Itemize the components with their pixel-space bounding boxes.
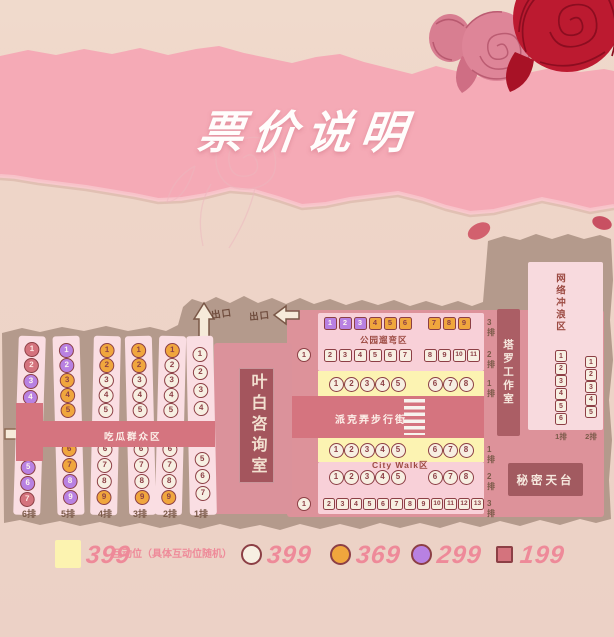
seat-citywalk-3排-8: 8 (404, 498, 417, 511)
seat-left-6排-6: 6 (19, 475, 34, 490)
seat-left-5排-5: 5 (60, 402, 75, 417)
row-label: 1排 (487, 445, 495, 465)
seat-left-2排-7: 7 (161, 457, 176, 472)
seat-left-3排-7: 7 (133, 457, 148, 472)
seat-citywalk-2排-6: 6 (428, 470, 443, 485)
seat-citywalk-1排-4: 4 (375, 443, 390, 458)
legend-price-299: 299 (436, 543, 483, 568)
seat-park-1排-4: 4 (375, 377, 390, 392)
seat-park-3排-6: 6 (399, 317, 412, 330)
seat-park-2排-6: 6 (384, 349, 397, 362)
seat-park-1排-8: 8 (459, 377, 474, 392)
seat-citywalk-3排-2: 2 (323, 498, 336, 511)
seat-citywalk-1排-7: 7 (443, 443, 458, 458)
seat-internet-1排-1: 1 (555, 350, 567, 362)
legend-price-199: 199 (519, 543, 566, 568)
row-label: 5排 (53, 507, 83, 520)
exit-label-side: 出口 (248, 307, 270, 323)
row-label: 2排 (487, 472, 495, 492)
seat-citywalk-2排-8: 8 (459, 470, 474, 485)
seat-park-3排-1: 1 (324, 317, 337, 330)
legend-note-interactive: 互动位（具体互动位随机） (112, 549, 237, 560)
seat-left-2排-8: 8 (161, 473, 176, 488)
seat-park-3排-4: 4 (369, 317, 382, 330)
seat-citywalk-3排-9: 9 (417, 498, 430, 511)
seat-citywalk-3排-12: 12 (458, 498, 471, 511)
seat-internet-2排-2: 2 (585, 369, 597, 381)
seat-left-6排-7: 7 (19, 491, 34, 506)
seat-left-1排-7: 7 (195, 485, 210, 500)
seat-citywalk-2排-4: 4 (375, 470, 390, 485)
internet-zone-label: 网络冲浪区 (552, 273, 566, 333)
seat-left-2排-2: 2 (164, 357, 179, 372)
seat-left-3排-3: 3 (131, 372, 146, 387)
seat-park-1排-7: 7 (443, 377, 458, 392)
rooftop-room: 秘密天台 (508, 463, 583, 496)
street-corridor: 派克弄步行街 (287, 396, 484, 438)
ticket-price-poster: 票价说明 派克弄步行街 公园遛弯区 City Walk区 塔罗工作室 网络冲浪区… (0, 0, 614, 637)
seat-internet-1排-3: 3 (555, 375, 567, 387)
seat-left-3排-1: 1 (130, 342, 145, 357)
seat-left-6排-1: 1 (24, 341, 39, 356)
seat-park-2排-5: 5 (369, 349, 382, 362)
seat-left-6排-3: 3 (23, 373, 38, 388)
seat-citywalk-2排-7: 7 (443, 470, 458, 485)
row-label: 1排 (186, 507, 216, 520)
seat-left-1排-4: 4 (193, 400, 208, 415)
legend-swatch-299 (411, 544, 432, 565)
seat-left-4排-3: 3 (98, 372, 113, 387)
seat-park-1排-3: 3 (360, 377, 375, 392)
seat-park-1排-5: 5 (391, 377, 406, 392)
seat-left-3排-2: 2 (131, 357, 146, 372)
seat-park-3排-5: 5 (384, 317, 397, 330)
seat-left-2排-1: 1 (164, 342, 179, 357)
seat-park-1排-2: 2 (344, 377, 359, 392)
row-label: 3排 (125, 507, 155, 520)
consult-room: 叶白咨询室 (239, 368, 274, 483)
seat-left-1排-2: 2 (192, 364, 207, 379)
row-label: 2排 (487, 350, 495, 370)
seat-left-2排-9: 9 (161, 489, 176, 504)
seat-park-2排-8: 8 (424, 349, 437, 362)
seat-left-4排-7: 7 (97, 457, 112, 472)
seat-citywalk-3排-13: 13 (471, 498, 484, 511)
seat-park-1排-1: 1 (329, 377, 344, 392)
seat-left-1排-1: 1 (192, 346, 207, 361)
seat-internet-1排-6: 6 (555, 413, 567, 425)
consult-room-label: 叶白咨询室 (245, 373, 269, 478)
seat-citywalk-1排-3: 3 (360, 443, 375, 458)
seat-citywalk-3排-6: 6 (377, 498, 390, 511)
seat-internet-1排-2: 2 (555, 363, 567, 375)
seat-left-2排-4: 4 (163, 387, 178, 402)
tarot-zone-label: 塔罗工作室 (501, 339, 516, 407)
seat-park-2排-4: 4 (354, 349, 367, 362)
seat-park-2排-11: 11 (467, 349, 480, 362)
seat-left-4排-2: 2 (99, 357, 114, 372)
seat-left-5排-9: 9 (62, 489, 77, 504)
seat-left-5排-4: 4 (59, 387, 74, 402)
seat-left-1排-6: 6 (194, 468, 209, 483)
left-area-zone-label: 吃瓜群众区 (104, 429, 162, 443)
row-label: 6排 (14, 507, 44, 520)
rooftop-zone-label: 秘密天台 (517, 472, 575, 488)
seat-internet-2排-4: 4 (585, 394, 597, 406)
seat-citywalk-1排-1: 1 (329, 443, 344, 458)
seat-citywalk-2排-2: 2 (344, 470, 359, 485)
seat-park-3排-2: 2 (339, 317, 352, 330)
seat-citywalk-3排-10: 10 (431, 498, 444, 511)
seat-internet-1排-4: 4 (555, 388, 567, 400)
seat-citywalk-3排-7: 7 (390, 498, 403, 511)
seat-citywalk-1排-5: 5 (391, 443, 406, 458)
legend-swatch-interactive (55, 540, 81, 568)
left-corridor: 吃瓜群众区 (42, 421, 215, 447)
seat-left-1排-5: 5 (194, 451, 209, 466)
seat-park-2排-1: 1 (297, 348, 311, 362)
row-label: 3排 (487, 318, 495, 338)
seat-park-2排-2: 2 (324, 349, 337, 362)
seat-park-2排-9: 9 (438, 349, 451, 362)
seat-citywalk-1排-6: 6 (428, 443, 443, 458)
seat-park-3排-8: 8 (443, 317, 456, 330)
crosswalk (404, 399, 425, 435)
seat-citywalk-3排-4: 4 (350, 498, 363, 511)
seat-park-1排-6: 6 (428, 377, 443, 392)
seat-citywalk-3排-5: 5 (363, 498, 376, 511)
seat-citywalk-2排-1: 1 (329, 470, 344, 485)
seat-left-5排-3: 3 (59, 372, 74, 387)
seat-citywalk-3排-11: 11 (444, 498, 457, 511)
seat-left-3排-5: 5 (132, 402, 147, 417)
row-label: 1排 (552, 431, 570, 442)
park-zone-label: 公园遛弯区 (360, 334, 408, 346)
seat-internet-2排-1: 1 (585, 356, 597, 368)
seat-citywalk-3排-1: 1 (297, 497, 311, 511)
seat-left-2排-5: 5 (163, 402, 178, 417)
seat-left-4排-8: 8 (96, 473, 111, 488)
seat-left-5排-2: 2 (59, 357, 74, 372)
seat-left-3排-8: 8 (134, 473, 149, 488)
row-label: 4排 (90, 507, 120, 520)
legend-swatch-399 (241, 544, 262, 565)
seat-left-6排-5: 5 (20, 459, 35, 474)
seat-left-2排-3: 3 (163, 372, 178, 387)
seat-left-1排-3: 3 (193, 382, 208, 397)
seat-left-3排-4: 4 (132, 387, 147, 402)
seat-left-4排-5: 5 (98, 402, 113, 417)
seat-park-3排-3: 3 (354, 317, 367, 330)
row-label: 2排 (155, 507, 185, 520)
seat-left-4排-1: 1 (99, 342, 114, 357)
seat-internet-2排-3: 3 (585, 381, 597, 393)
seat-citywalk-2排-5: 5 (391, 470, 406, 485)
left-corridor-stub (16, 403, 43, 461)
seat-citywalk-2排-3: 3 (360, 470, 375, 485)
seat-citywalk-3排-3: 3 (336, 498, 349, 511)
seat-park-2排-3: 3 (339, 349, 352, 362)
legend-price-399: 399 (266, 543, 313, 568)
seat-park-3排-7: 7 (428, 317, 441, 330)
row-label: 1排 (487, 379, 495, 399)
seat-left-5排-8: 8 (62, 473, 77, 488)
seat-park-2排-7: 7 (399, 349, 412, 362)
seat-park-3排-9: 9 (458, 317, 471, 330)
seat-left-4排-9: 9 (96, 489, 111, 504)
seat-internet-2排-5: 5 (585, 406, 597, 418)
street-zone-label: 派克弄步行街 (335, 411, 407, 426)
seat-left-4排-4: 4 (98, 387, 113, 402)
row-label: 2排 (582, 431, 600, 442)
seat-citywalk-1排-8: 8 (459, 443, 474, 458)
seat-citywalk-1排-2: 2 (344, 443, 359, 458)
seat-left-5排-7: 7 (61, 457, 76, 472)
legend-swatch-199 (496, 546, 513, 563)
legend-swatch-369 (330, 544, 351, 565)
row-label: 3排 (487, 499, 495, 519)
exit-label-up: 出口 (210, 305, 233, 322)
seat-left-6排-2: 2 (23, 357, 38, 372)
tarot-studio-room: 塔罗工作室 (497, 309, 520, 436)
seat-internet-1排-5: 5 (555, 400, 567, 412)
legend: 399 互动位（具体互动位随机） 399 369 299 199 (0, 530, 614, 580)
legend-price-369: 369 (355, 543, 402, 568)
seat-left-3排-9: 9 (134, 489, 149, 504)
seat-left-5排-1: 1 (58, 342, 73, 357)
seat-park-2排-10: 10 (453, 349, 466, 362)
